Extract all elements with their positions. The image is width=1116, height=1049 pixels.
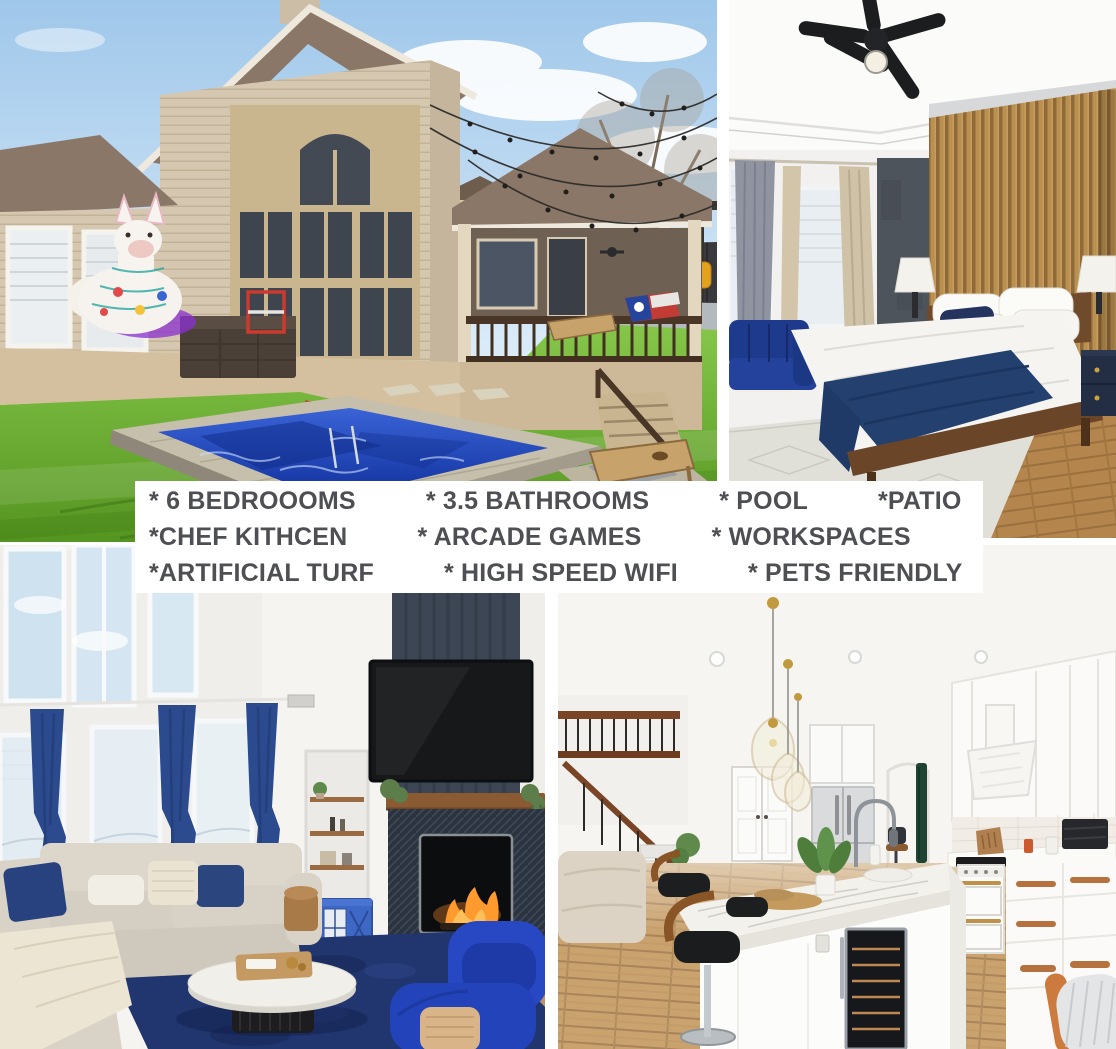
upper-cabinets (952, 651, 1116, 827)
kitchen-illustration (558, 545, 1116, 1049)
amenity-item: * 6 BEDROOOMS (149, 483, 356, 519)
table-tray (235, 951, 312, 981)
green-curtain (916, 763, 927, 863)
amenity-item: * ARCADE GAMES (417, 519, 641, 555)
backyard-illustration (0, 0, 717, 542)
photo-bedroom (729, 0, 1116, 538)
bedroom-illustration (729, 0, 1116, 538)
amenities-row-1: * 6 BEDROOOMS * 3.5 BATHROOMS * POOL *PA… (149, 483, 983, 519)
sofa-arm (558, 851, 646, 943)
photo-living-room (0, 545, 545, 1049)
nightstand (1081, 350, 1116, 416)
amenities-row-3: *ARTIFICIAL TURF * HIGH SPEED WIFI * PET… (149, 555, 983, 591)
modern-chair (1043, 970, 1116, 1049)
listing-photo-collage: * 6 BEDROOOMS * 3.5 BATHROOMS * POOL *PA… (0, 0, 1116, 1049)
wood-side-stool (284, 886, 318, 931)
fridge-cabinet (810, 725, 874, 783)
living-room-illustration (0, 545, 545, 1049)
amenity-item: * POOL (719, 483, 808, 519)
amenity-item: * WORKSPACES (712, 519, 911, 555)
photo-backyard-pool (0, 0, 717, 542)
storage-box (180, 316, 296, 378)
tan-pillow (420, 1007, 480, 1049)
wine-fridge (840, 929, 906, 1049)
amenity-item: *PATIO (878, 483, 962, 519)
amenity-item: * 3.5 BATHROOMS (426, 483, 649, 519)
air-vent (288, 695, 314, 707)
amenity-item: *ARTIFICIAL TURF (149, 555, 374, 591)
gray-curtain (735, 160, 775, 340)
amenity-item: * HIGH SPEED WIFI (444, 555, 678, 591)
amenity-item: *CHEF KITHCEN (149, 519, 347, 555)
outlet (816, 935, 829, 952)
amenities-banner: * 6 BEDROOOMS * 3.5 BATHROOMS * POOL *PA… (135, 481, 983, 593)
tv (370, 661, 532, 781)
photo-kitchen (558, 545, 1116, 1049)
amenities-row-2: *CHEF KITHCEN * ARCADE GAMES * WORKSPACE… (149, 519, 983, 555)
amenity-item: * PETS FRIENDLY (748, 555, 963, 591)
